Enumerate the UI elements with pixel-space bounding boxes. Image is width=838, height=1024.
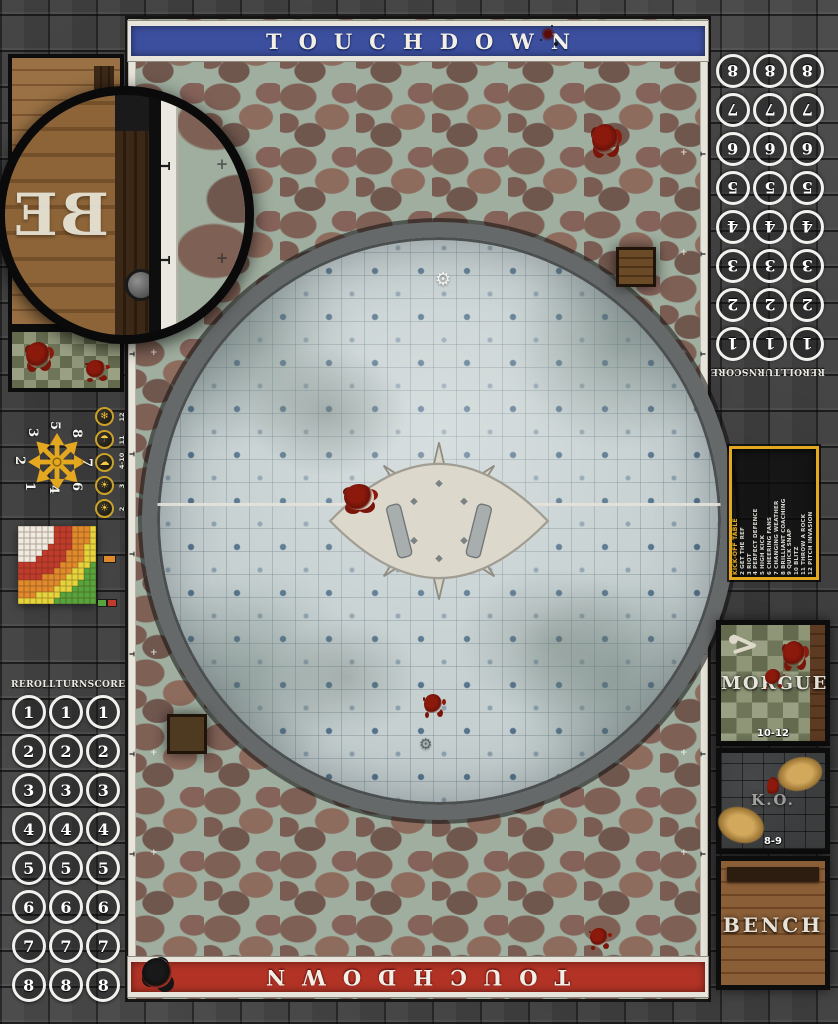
sideline-tick: T [699,252,707,257]
pitch-cross: + [680,848,688,858]
morgue-range: 10-12 [721,728,825,739]
wooden-crate [167,714,207,754]
blood-splatter [590,928,608,946]
blood-splatter [783,641,805,667]
inset-bench-letters: BE [5,181,115,249]
sideline-tick: T [699,152,707,157]
track-cell: 2 [86,734,120,768]
pass-range-ruler [18,526,96,604]
scatter-number: 4 [46,485,61,494]
track-cell: 8 [86,968,120,1002]
kickoff-row: 7 CHANGING WEATHER [774,451,781,575]
morgue-box: MORGUE 10-12 [716,620,830,746]
kickoff-row: 12 PITCH INVASION [808,451,815,575]
blood-splatter [767,777,779,797]
ruler-cell [90,598,96,604]
inset-sideline: T T [161,95,178,335]
track-cell: 8 [12,968,46,1002]
track-cell: 3 [753,249,787,283]
track-cell: 2 [716,288,750,322]
track-cell: 7 [790,93,824,127]
kickoff-table: KICK-OFF TABLE2 GET THE REF3 RIOT4 PERFE… [729,446,819,580]
track-cell: 5 [12,851,46,885]
track-cell: 4 [49,812,83,846]
track-cell: 8 [49,968,83,1002]
bottom-endzone-banner: TOUCHDOWN [128,957,708,997]
inset-cobblestone: + + [178,95,245,335]
track-cell: 8 [790,54,824,88]
pitch-cross: + [216,249,229,267]
sideline-tick: T [158,162,172,170]
scatter-number: 5 [47,421,62,430]
track-cell: 1 [49,695,83,729]
track-cell: 3 [12,773,46,807]
blood-splatter [540,26,556,42]
blood-splatter [765,669,781,685]
sideline-tick: T [699,352,707,357]
track-cell: 1 [86,695,120,729]
bench-label: BENCH [721,913,825,937]
track-cell: 4 [790,210,824,244]
weather-range: 11 [118,434,126,446]
kickoff-row: 3 RIOT [747,451,754,575]
blood-splatter [344,484,374,510]
track-cell: 5 [716,171,750,205]
pitch-cross: + [150,348,158,358]
track-cell: 6 [753,132,787,166]
bench-seat [727,867,819,881]
sideline-tick: T [127,752,135,757]
track-header-score: SCORE [711,366,749,376]
gear-logo-icon: ⚙ [435,269,451,290]
track-header-reroll: REROLL [780,366,825,376]
track-cell: 2 [753,288,787,322]
scatter-template: 12345678 [12,410,108,506]
track-cell: 2 [12,734,46,768]
track-cell: 1 [12,695,46,729]
track-cell: 6 [12,890,46,924]
bench-box: BENCH [716,856,830,990]
score-track-left: REROLL TURN SCORE 1112223334445556667778… [10,680,122,1002]
sideline-tick: T [127,552,135,557]
top-endzone-banner: TOUCHDOWN [128,21,708,61]
track-cell: 2 [49,734,83,768]
kickoff-row: 5 HIGH KICK [760,451,767,575]
inset-dugout-border [149,95,161,335]
sideline-tick: T [127,352,135,357]
track-cell: 1 [753,327,787,361]
track-header-turn: TURN [748,366,780,376]
gear-logo-icon: ⚙ [419,735,432,753]
track-cell: 7 [49,929,83,963]
pitch-cross: + [150,748,158,758]
track-cell: 7 [753,93,787,127]
kickoff-row: 6 CHEERING FANS [767,451,774,575]
ruler-legend-chip [98,600,106,606]
track-cell: 3 [716,249,750,283]
pitch-cross: + [680,248,688,258]
track-cell: 1 [716,327,750,361]
wooden-crate [616,247,656,287]
kickoff-row: 8 BRILLIANT COACHING [781,451,788,575]
top-touchdown-label: TOUCHDOWN [249,29,587,54]
scatter-number: 7 [79,458,94,467]
ko-range: 8-9 [721,836,825,847]
bottom-touchdown-label: TOUCHDOWN [249,965,587,990]
sideline-tick: T [127,652,135,657]
track-cell: 4 [12,812,46,846]
track-cell: 4 [753,210,787,244]
track-cell: 5 [49,851,83,885]
pitch-cross: + [680,748,688,758]
track-cell: 7 [86,929,120,963]
track-cell: 4 [716,210,750,244]
sideline-tick: T [127,852,135,857]
track-cell: 7 [716,93,750,127]
track-cell: 5 [790,171,824,205]
sideline-tick: T [158,256,172,264]
weather-range: 3 [118,480,126,492]
kickoff-row: 9 QUICK SNAP [788,451,795,575]
scatter-number: 8 [69,429,84,438]
kickoff-row: 2 GET THE REF [740,451,747,575]
track-header-score: SCORE [88,680,126,690]
pitch-cross: + [150,648,158,658]
skeleton-icon [733,644,755,655]
track-cell: 3 [49,773,83,807]
kickoff-row: 4 PERFECT DEFENCE [754,451,761,575]
track-cell: 5 [86,851,120,885]
ruler-legend-chip [108,600,116,606]
floor-stain [277,617,417,737]
track-cell: 6 [86,890,120,924]
pitch-cross: + [216,155,229,173]
kickoff-title: KICK-OFF TABLE [733,451,740,575]
ink-splatter [142,958,172,988]
sideline-tick: T [699,752,707,757]
track-cell: 4 [86,812,120,846]
sideline-tick: T [699,852,707,857]
weather-range: 4-10 [118,457,126,469]
track-cell: 3 [790,249,824,283]
magnifier-inset: BE T T + + [0,86,254,344]
sideline-tick: T [127,452,135,457]
track-cell: 6 [790,132,824,166]
scatter-number: 2 [12,456,27,465]
scatter-number: 3 [25,428,40,437]
track-cell: 3 [86,773,120,807]
blood-splatter [592,124,618,154]
weather-range: 2 [118,503,126,515]
track-cell: 2 [790,288,824,322]
game-mat: TOUCHDOWN TOUCHDOWN TT++TT++TT++TT++TT++… [0,0,838,1024]
track-cell: 1 [790,327,824,361]
pitch-cross: + [680,148,688,158]
hay-pile [774,752,827,796]
blood-splatter [424,694,442,714]
inset-bench-seat [115,131,149,335]
score-track-right: REROLL TURN SCORE 1112223334445556667778… [714,54,826,376]
blood-splatter [26,342,50,368]
knocked-out-box: K.O. 8-9 [716,748,830,854]
center-emblem [323,431,555,611]
scatter-number: 1 [22,482,37,491]
kickoff-row: 10 BLITZ [794,451,801,575]
track-cell: 7 [12,929,46,963]
track-cell: 6 [49,890,83,924]
track-header-turn: TURN [56,680,88,690]
track-cell: 8 [753,54,787,88]
ruler-legend-chip [104,556,115,562]
blood-splatter [86,360,106,378]
kickoff-row: 11 THROW A ROCK [801,451,808,575]
pitch-cross: + [150,848,158,858]
scatter-number: 6 [69,482,84,491]
track-cell: 6 [716,132,750,166]
track-cell: 5 [753,171,787,205]
track-cell: 8 [716,54,750,88]
skeleton-icon [729,635,738,644]
weather-range: 12 [118,411,126,423]
track-header-reroll: REROLL [11,680,56,690]
